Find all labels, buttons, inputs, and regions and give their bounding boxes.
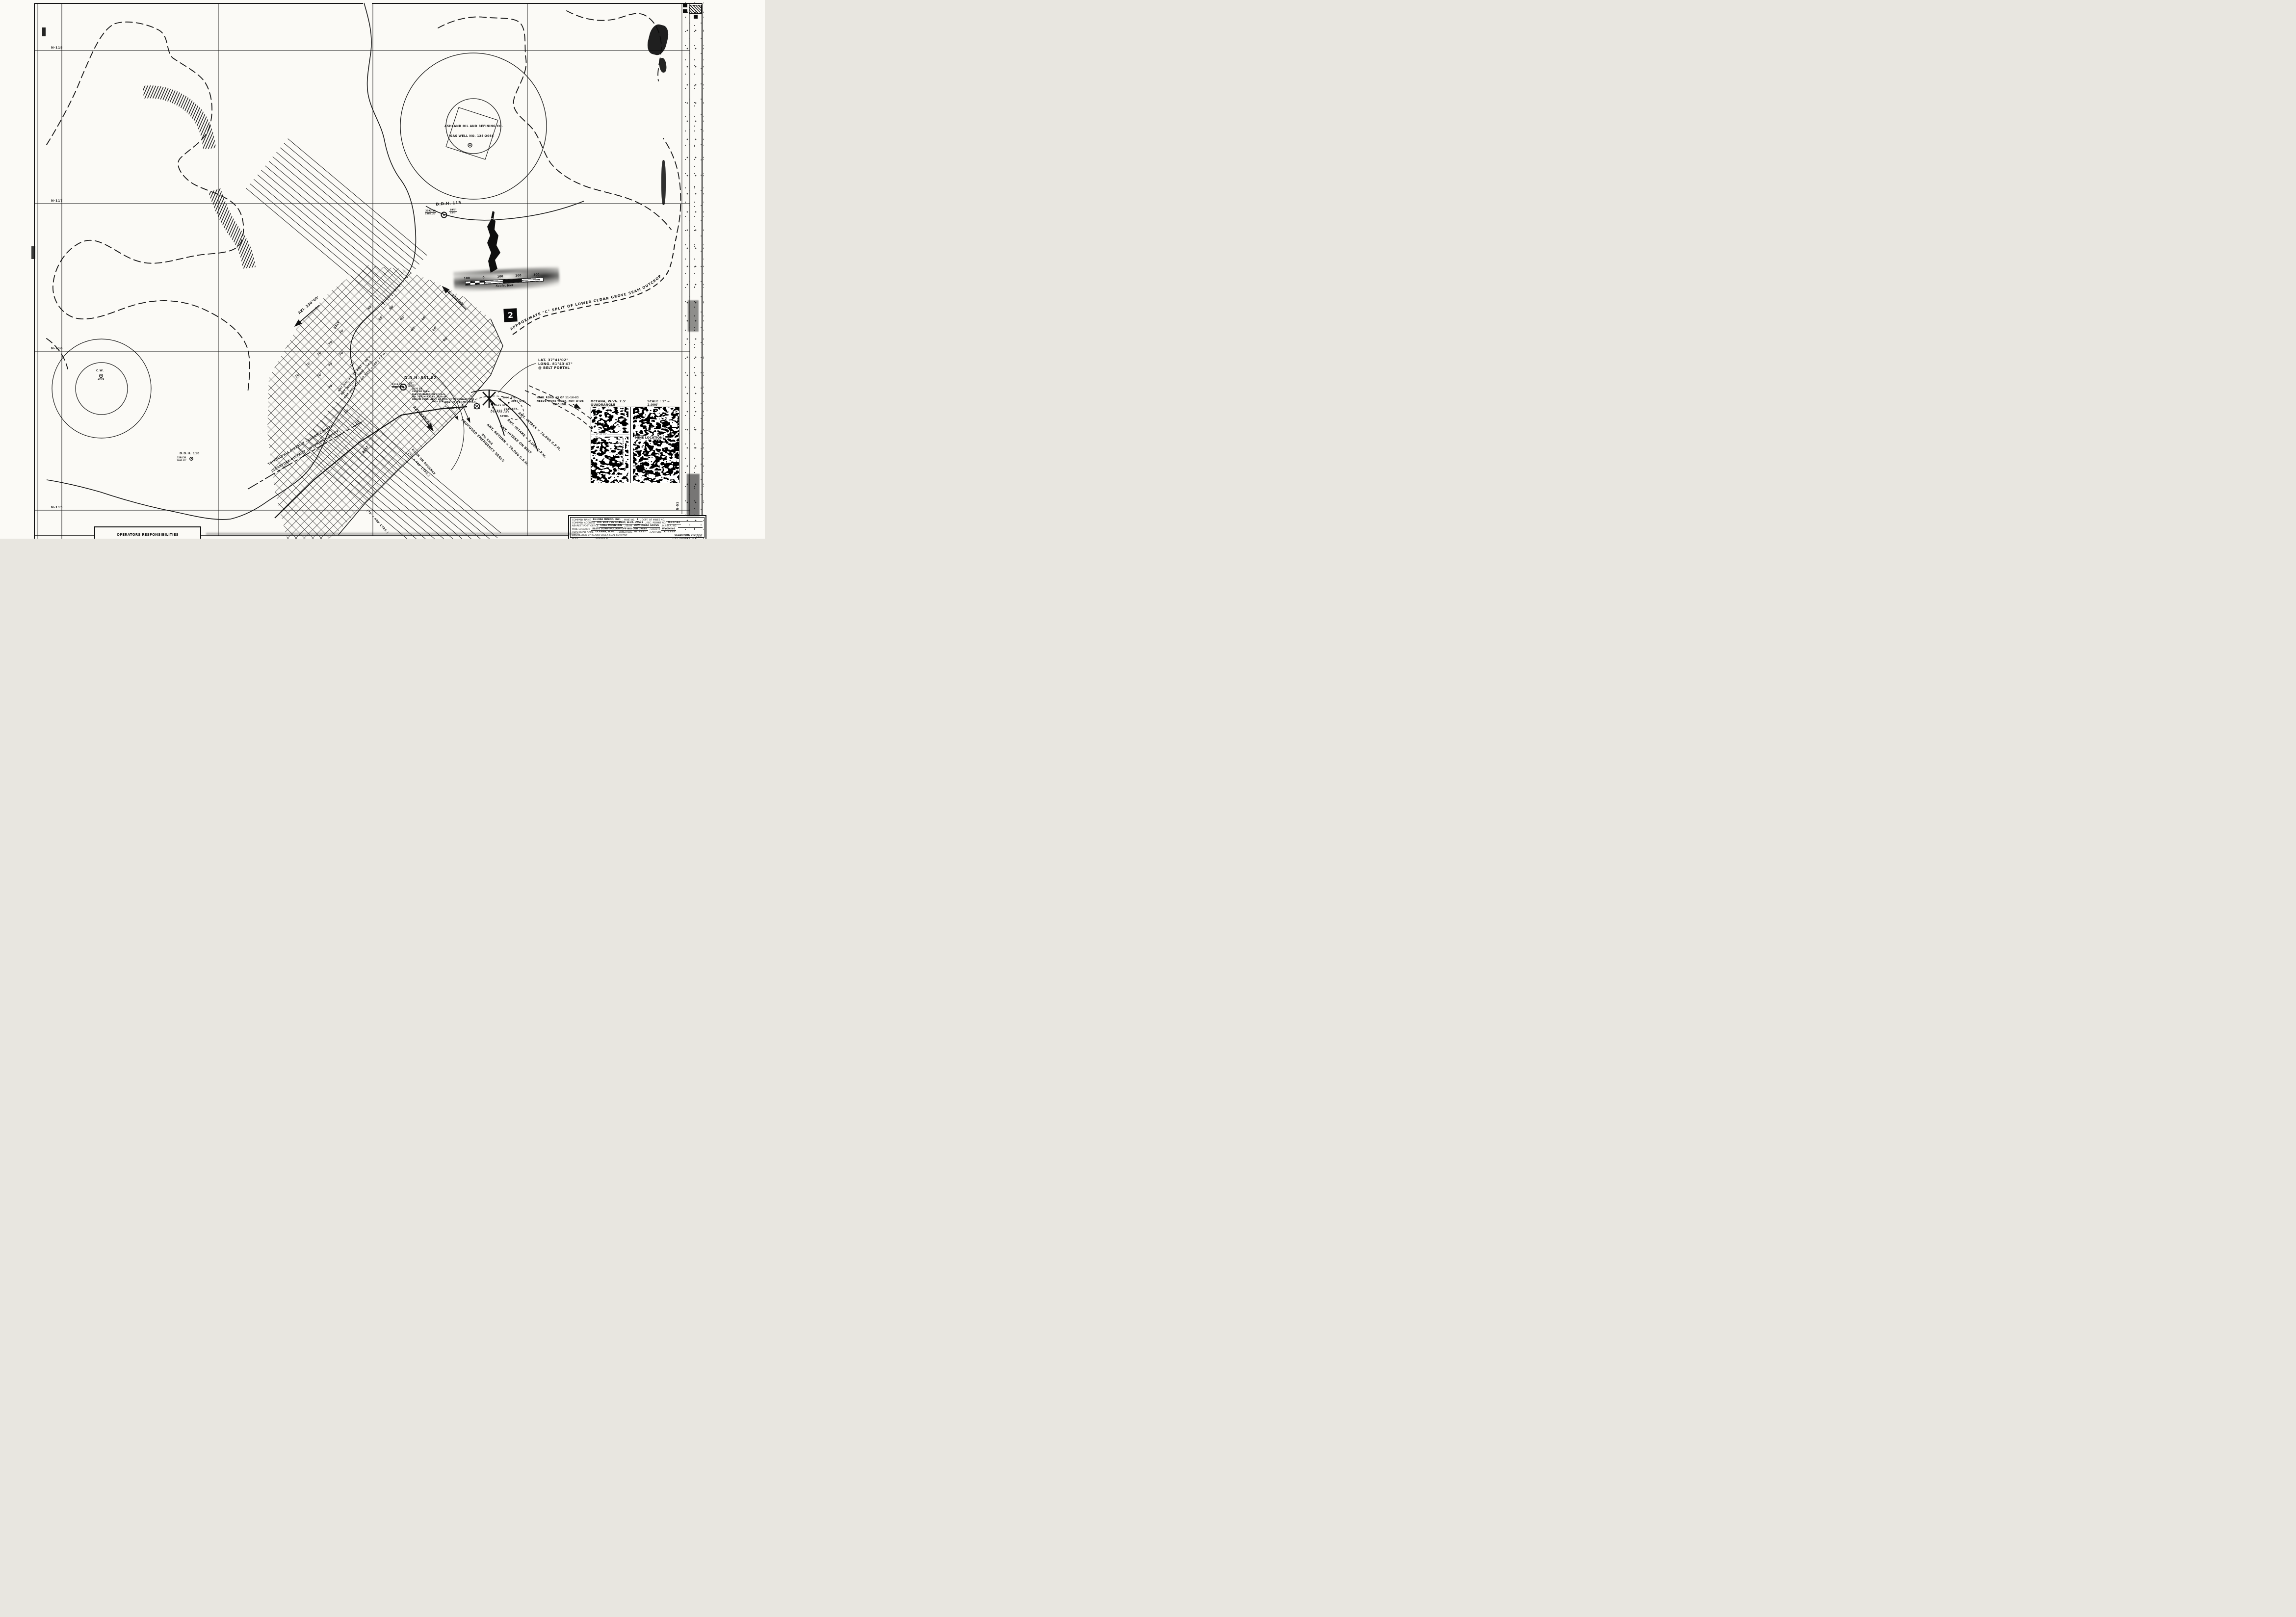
inset-topo-texture	[591, 407, 679, 483]
haul-note-3: ENOUGH.	[553, 404, 567, 406]
inset-map: OCEANA, W.VA. 7.5' QUADRANGLE SCALE : 1"…	[591, 400, 679, 483]
mine-location-label: MINE LOCATION	[572, 528, 590, 531]
county-label: , COUNTY	[649, 528, 660, 531]
operators-box: OPERATORS RESPONSIBILITIES	[94, 526, 201, 539]
inset-header: OCEANA, W.VA. 7.5' QUADRANGLE SCALE : 1"…	[591, 400, 679, 407]
building-hatch	[689, 5, 702, 14]
ddh881-title: D.D.H. 881-82	[404, 376, 437, 380]
sheet-number: 2	[507, 311, 513, 320]
building-mark	[683, 9, 687, 13]
portal-latlong: LAT. 37°41'02" LONG. 81°43'47" @ BELT PO…	[538, 359, 573, 370]
scan-blob	[42, 27, 46, 36]
bottom-scan-smudge	[206, 533, 579, 535]
sheet-number-box: 2	[503, 308, 517, 322]
building-mark	[683, 3, 687, 7]
end-permit-label: END OF PERMIT MKR.	[444, 401, 477, 404]
latlong-leader	[498, 364, 536, 392]
mine-map-sheet: APPROXIMATE "C" SPLIT OF LOWER CEDAR GRO…	[0, 0, 765, 539]
scan-blob	[687, 474, 700, 516]
inset-topo: LONGITUDE = 81°43'47" 37°41'02" MINE LOC…	[591, 407, 679, 483]
grid-label-n118: N-118	[51, 46, 63, 50]
inset-title: OCEANA, W.VA. 7.5' QUADRANGLE	[591, 400, 647, 407]
date-label: DATE	[572, 537, 578, 539]
stake-3043-label: 3043 STK.	[494, 405, 509, 407]
right-edge-speckle	[683, 0, 704, 539]
engineered-by-label: ENGINEERED BY ISLAND CREEK COAL COMPANY	[572, 534, 627, 537]
gas-well-number: GAS WELL NO. 124-2068	[444, 135, 499, 138]
ddh881-thickness: 56" 4.65'	[408, 382, 415, 388]
inset-latitude-label: 37°41'02"	[595, 434, 607, 436]
inset-longitude-label: LONGITUDE = 81°43'47"	[623, 436, 625, 465]
portal-at: @ BELT PORTAL	[538, 366, 573, 370]
gas-well-owner: ASHLAND OIL AND REFINING CO.	[444, 125, 499, 128]
cw-well-number: #19	[98, 378, 104, 381]
drawn-by-label: , DRAWN BY	[595, 537, 608, 539]
company-address-label: COMPANY ADDRESS	[572, 522, 595, 524]
grid-label-n116: N-116	[51, 346, 63, 350]
rec-permit-value: U-177-83	[667, 522, 681, 524]
ddh115-elev: 2192.49 1886.20'	[425, 210, 436, 215]
haul-note-1: HAUL ROAD AS OF 11-16-83	[537, 397, 579, 399]
stake-3040-label: 3040 STK.	[511, 400, 526, 403]
haul-note-arrow	[573, 404, 580, 409]
grid-label-n115: N-115	[51, 505, 63, 509]
inset-mine-location-label: MINE LOCATION	[634, 436, 663, 440]
company-name-label: COMPANY NAME	[572, 519, 591, 522]
longitude-value: 81°43'47"	[633, 531, 648, 534]
building-mark	[694, 15, 698, 19]
scan-blob	[688, 300, 699, 332]
grid-label-n51: N-51	[676, 501, 679, 510]
inset-scale: SCALE : 1" = 2,000'	[647, 400, 679, 407]
scan-blob	[661, 160, 666, 205]
ddh118-title: D.D.H. 118	[180, 452, 200, 455]
spoil-label: SPOIL	[500, 415, 509, 418]
haul-note-2: NEEDS MORE WORK, NOT WIDE	[537, 400, 584, 403]
inset-longitude-strip	[628, 407, 633, 483]
ddh118-elev: 2284.50 1892.07'	[177, 456, 186, 462]
latitude-label: , LATITUDE	[649, 531, 662, 534]
cw19-circles	[52, 339, 151, 438]
stake-3044-label: 3044 STK.	[502, 397, 517, 399]
cw-well-name: C.W.	[96, 369, 104, 372]
operators-box-title: OPERATORS RESPONSIBILITIES	[95, 533, 200, 537]
scan-blob	[31, 246, 35, 259]
grid-label-n117: N-117	[51, 199, 63, 203]
hatched-bands	[143, 92, 249, 268]
ddh115-thickness: 49½" 32½"	[449, 209, 457, 214]
scalebar-checker	[466, 281, 484, 285]
ddh881-elev: 2124.19 1904.77'	[391, 384, 403, 389]
tp-3042-label: 3042 T.P.	[447, 408, 461, 410]
access-road-label: ACCESS RD.	[491, 410, 509, 413]
